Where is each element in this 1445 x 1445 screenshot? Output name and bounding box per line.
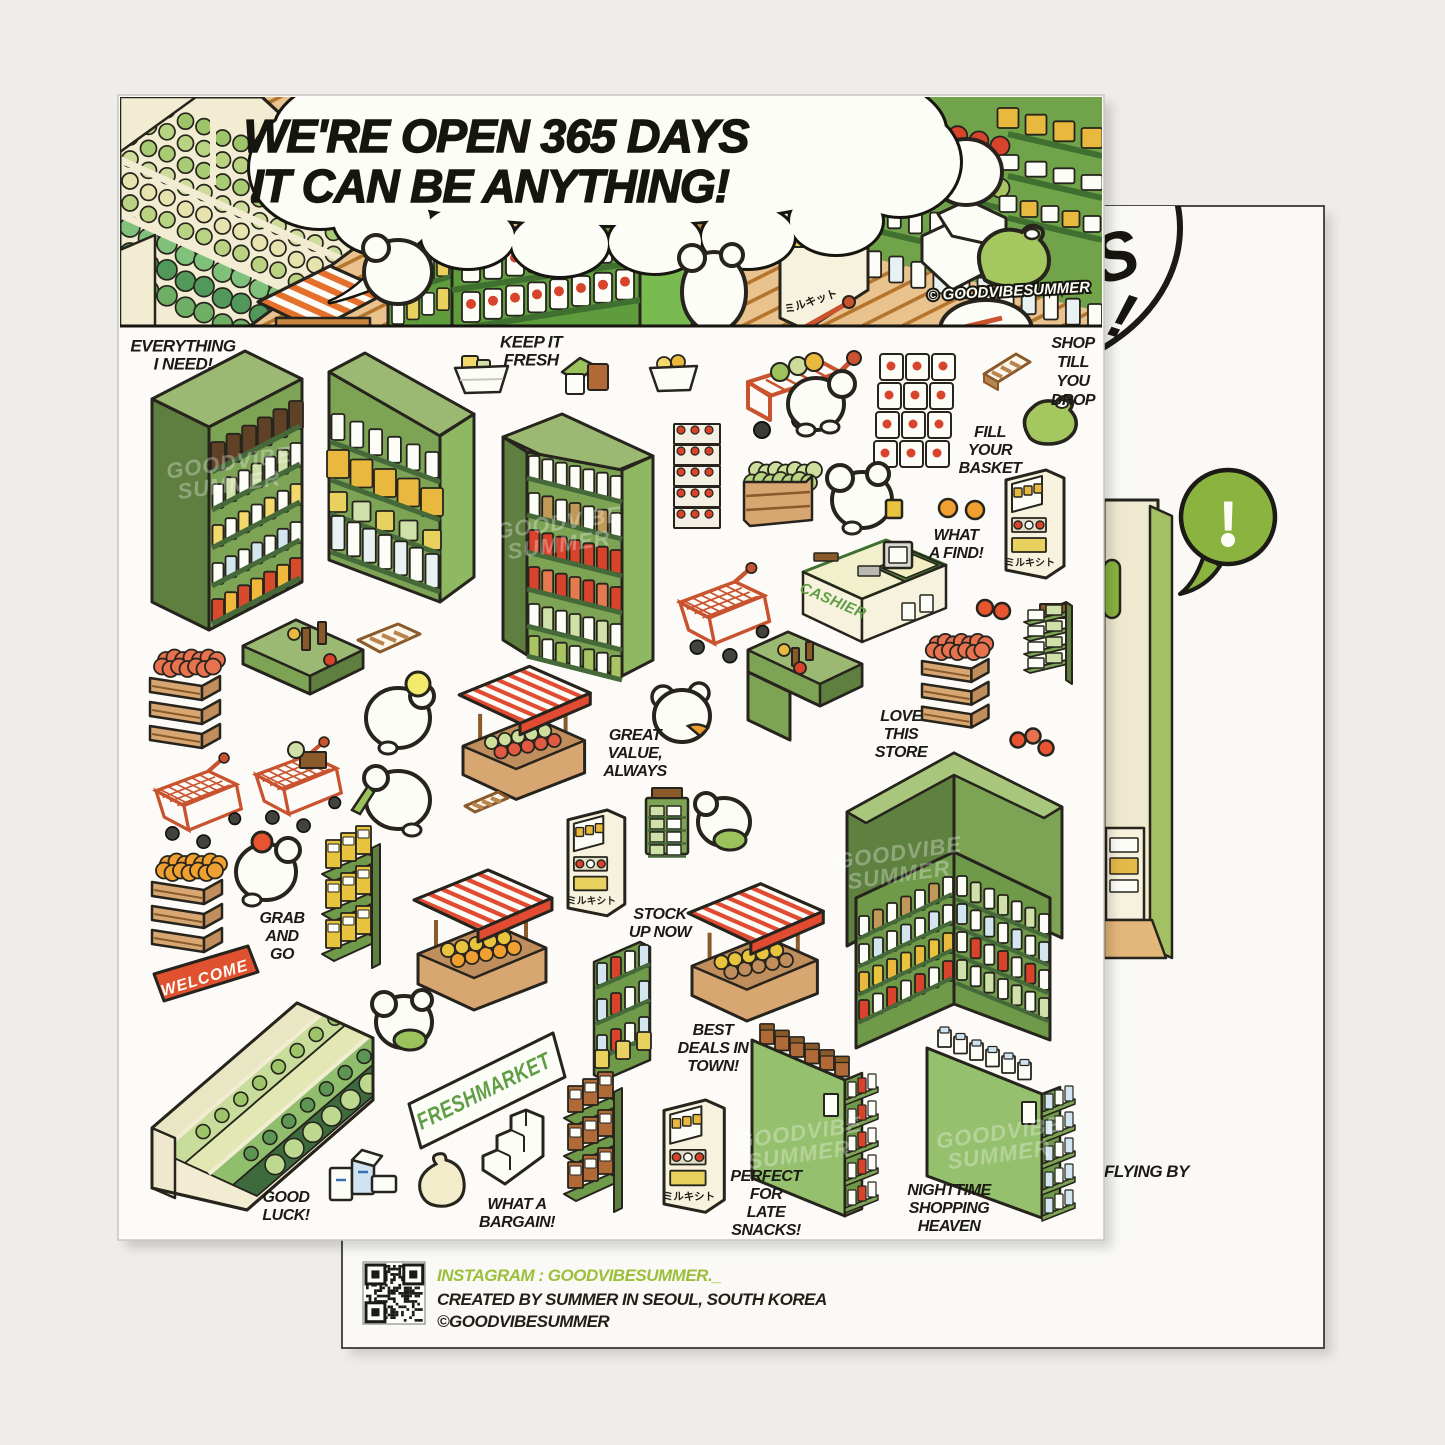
svg-text:WHAT: WHAT bbox=[934, 527, 981, 544]
svg-text:LOVE: LOVE bbox=[880, 708, 923, 725]
svg-text:TILL: TILL bbox=[1057, 354, 1089, 371]
svg-text:WE'RE OPEN 365 DAYS: WE'RE OPEN 365 DAYS bbox=[244, 110, 750, 162]
svg-text:UP NOW: UP NOW bbox=[629, 924, 694, 941]
svg-text:GRAB: GRAB bbox=[259, 910, 304, 927]
svg-text:SNACKS!: SNACKS! bbox=[731, 1222, 802, 1239]
svg-text:EVERYTHING: EVERYTHING bbox=[130, 337, 235, 356]
svg-text:GO: GO bbox=[270, 946, 295, 963]
svg-text:SHOP: SHOP bbox=[1051, 335, 1095, 352]
svg-text:SHOPPING: SHOPPING bbox=[909, 1200, 990, 1217]
svg-text:LATE: LATE bbox=[747, 1204, 787, 1221]
svg-text:YOUR: YOUR bbox=[968, 442, 1013, 459]
svg-text:©GOODVIBESUMMER: ©GOODVIBESUMMER bbox=[437, 1312, 610, 1331]
svg-text:BARGAIN!: BARGAIN! bbox=[479, 1214, 556, 1231]
svg-text:TOWN!: TOWN! bbox=[687, 1058, 740, 1075]
svg-text:NIGHTTIME: NIGHTTIME bbox=[907, 1182, 992, 1199]
svg-text:GREAT: GREAT bbox=[609, 727, 663, 744]
svg-text:GOOD: GOOD bbox=[263, 1189, 311, 1206]
svg-text:HEAVEN: HEAVEN bbox=[918, 1218, 981, 1235]
svg-text:LUCK!: LUCK! bbox=[262, 1207, 310, 1224]
svg-text:DEALS IN: DEALS IN bbox=[678, 1040, 750, 1057]
svg-text:IT CAN BE ANYTHING!: IT CAN BE ANYTHING! bbox=[251, 160, 730, 212]
svg-text:BASKET: BASKET bbox=[959, 460, 1024, 477]
svg-text:ALWAYS: ALWAYS bbox=[602, 763, 667, 780]
svg-text:BEST: BEST bbox=[693, 1022, 735, 1039]
svg-text:FOR: FOR bbox=[750, 1186, 783, 1203]
svg-text:AND: AND bbox=[264, 928, 299, 945]
svg-text:DROP: DROP bbox=[1051, 392, 1096, 409]
svg-text:WHAT A: WHAT A bbox=[487, 1196, 546, 1213]
svg-text:FRESH: FRESH bbox=[503, 351, 559, 370]
svg-text:A FIND!: A FIND! bbox=[928, 545, 985, 562]
svg-text:FILL: FILL bbox=[974, 424, 1006, 441]
svg-text:STORE: STORE bbox=[875, 744, 929, 761]
svg-text:YOU: YOU bbox=[1056, 373, 1090, 390]
svg-text:ミルキシト: ミルキシト bbox=[663, 1191, 715, 1203]
svg-text:THIS: THIS bbox=[884, 726, 919, 743]
svg-text:I NEED!: I NEED! bbox=[154, 355, 214, 374]
svg-text:VALUE,: VALUE, bbox=[608, 745, 663, 762]
svg-text:STOCK: STOCK bbox=[633, 906, 688, 923]
svg-text:ミルキシト: ミルキシト bbox=[567, 895, 616, 907]
svg-text:CREATED BY SUMMER IN SEOUL, SO: CREATED BY SUMMER IN SEOUL, SOUTH KOREA bbox=[437, 1290, 827, 1309]
svg-text:FLYING BY: FLYING BY bbox=[1104, 1162, 1191, 1181]
svg-text:KEEP IT: KEEP IT bbox=[500, 333, 564, 352]
svg-text:INSTAGRAM : GOODVIBESUMMER._: INSTAGRAM : GOODVIBESUMMER._ bbox=[437, 1266, 721, 1285]
svg-text:ミルキシト: ミルキシト bbox=[1005, 557, 1055, 569]
